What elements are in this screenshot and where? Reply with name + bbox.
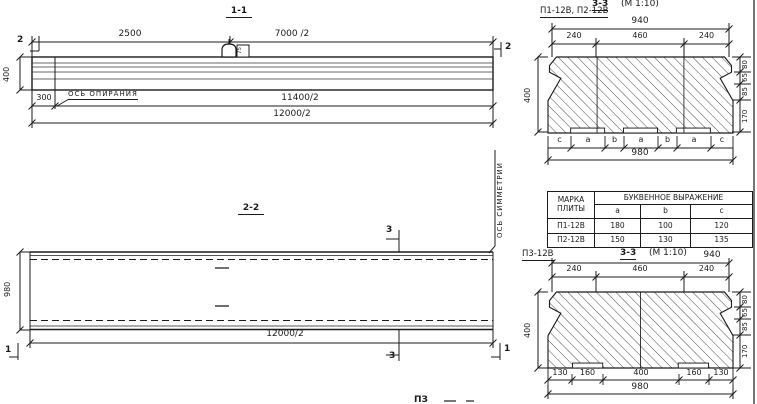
plate-mark: П1-12В — [548, 219, 595, 234]
value-b: 130 — [641, 234, 691, 248]
dim-label-240: 240 — [684, 265, 729, 273]
bottom-groove — [624, 128, 658, 133]
value-a: 180 — [595, 219, 641, 234]
dim-label-85: 85 — [742, 84, 752, 100]
dim-label-300: 300 — [33, 94, 55, 102]
section-marker-1-right: 1 — [504, 345, 510, 354]
dim-label-11400-2: 11400/2 — [270, 94, 330, 103]
support-axis-leader — [57, 99, 69, 106]
dim-label-940: 940 — [692, 251, 732, 260]
dim-label-65: 65 — [742, 72, 752, 84]
dim-label-460: 460 — [596, 265, 684, 273]
table-row: П1-12В 180 100 120 — [548, 219, 753, 234]
lifting-loop — [222, 44, 236, 57]
letter-cell-b: b — [605, 136, 624, 144]
bottom-groove — [571, 128, 605, 133]
dim-label-85: 85 — [742, 319, 752, 335]
section-marker-1-left: 1 — [5, 346, 11, 355]
letter-cell-a: a — [624, 136, 658, 144]
section-marker-2-left: 2 — [17, 36, 23, 45]
drawing-sheet: 1-1 2500 7000 /2 2 2 75 400 300 ОСЬ ОПИР… — [0, 0, 757, 404]
dim-label-12000-2: 12000/2 — [262, 110, 322, 119]
table-row: П2-12В 150 130 135 — [548, 234, 753, 248]
cutoff-text-fragment: ПЗ — [414, 396, 428, 404]
dim-label-170: 170 — [742, 100, 752, 132]
dim-label-130: 130 — [709, 369, 733, 377]
table-col-a: a — [595, 205, 641, 219]
table-col1-line2: ПЛИТЫ — [549, 205, 593, 214]
dim-label-7000-2: 7000 /2 — [262, 30, 322, 39]
section-1-1-title: 1-1 — [226, 7, 252, 18]
section-3-3-title: 3-3 — [620, 249, 636, 260]
letter-cell-a: a — [677, 136, 711, 144]
section-marker-3-top: 3 — [386, 226, 392, 235]
section-3-3-title: 3-3 — [592, 0, 608, 11]
section-3-3-scale: (М 1:10) — [621, 0, 659, 9]
table-header-row: МАРКА ПЛИТЫ БУКВЕННОЕ ВЫРАЖЕНИЕ — [548, 192, 753, 205]
dim-label-170: 170 — [742, 335, 752, 368]
dim-label-80: 80 — [742, 292, 752, 307]
dim-label-2500: 2500 — [100, 30, 160, 39]
hook-label: 75 — [238, 46, 248, 56]
section-marker-1-right-flag — [491, 343, 500, 360]
letter-cell-c: c — [711, 136, 733, 144]
symmetry-axis-label: ОСЬ СИММЕТРИИ — [497, 150, 507, 250]
value-c: 120 — [691, 219, 753, 234]
dim-label-400: 400 — [603, 369, 679, 377]
center-dashes — [215, 268, 229, 306]
hatched-plate-body — [548, 57, 733, 133]
dim-label-400: 400 — [3, 59, 13, 89]
value-a: 150 — [595, 234, 641, 248]
section-3-3-scale: (М 1:10) — [649, 249, 687, 258]
dim-label-80: 80 — [742, 57, 752, 72]
dim-label-400: 400 — [524, 312, 534, 348]
dim-label-940: 940 — [615, 17, 665, 26]
letter-cell-b: b — [658, 136, 677, 144]
table-col-c: c — [691, 205, 753, 219]
section-1-1-linework — [17, 36, 502, 128]
support-axis-label: ОСЬ ОПИРАНИЯ — [68, 91, 138, 100]
dim-label-980: 980 — [615, 149, 665, 158]
slab-outline-1-1 — [32, 57, 493, 90]
value-b: 100 — [641, 219, 691, 234]
symmetry-axis-leader — [489, 150, 495, 253]
dim-label-130: 130 — [548, 369, 572, 377]
section-marker-2-right: 2 — [505, 43, 511, 52]
bottom-groove — [676, 128, 710, 133]
dim-label-65: 65 — [742, 307, 752, 319]
dim-label-460: 460 — [596, 32, 684, 40]
dim-label-12000-2: 12000/2 — [255, 330, 315, 339]
dim-label-980: 980 — [4, 272, 14, 306]
dim-label-400: 400 — [524, 77, 534, 113]
dim-label-240: 240 — [552, 32, 596, 40]
plate-mark-label: П3-12В — [522, 250, 554, 261]
dim-label-160: 160 — [572, 369, 603, 377]
section-marker-2-right-flag — [494, 42, 501, 57]
dim-label-980: 980 — [615, 383, 665, 392]
table-col1-header: МАРКА ПЛИТЫ — [548, 192, 595, 219]
dim-label-240: 240 — [684, 32, 729, 40]
letter-values-table: МАРКА ПЛИТЫ БУКВЕННОЕ ВЫРАЖЕНИЕ a b c П1… — [547, 191, 753, 248]
cross-section-p3-linework — [535, 258, 752, 399]
value-c: 135 — [691, 234, 753, 248]
letter-cell-c: c — [548, 136, 571, 144]
dim-label-240: 240 — [552, 265, 596, 273]
dim-label-160: 160 — [679, 369, 709, 377]
table-col-b: b — [641, 205, 691, 219]
plate-mark: П2-12В — [548, 234, 595, 248]
section-2-2-title: 2-2 — [238, 204, 264, 215]
section-marker-3-bottom: 3 — [389, 352, 395, 361]
table-span-header: БУКВЕННОЕ ВЫРАЖЕНИЕ — [595, 192, 753, 205]
section-marker-2-left-flag — [30, 36, 39, 51]
letter-cell-a: a — [571, 136, 605, 144]
slab-ends-2-2 — [30, 252, 493, 330]
